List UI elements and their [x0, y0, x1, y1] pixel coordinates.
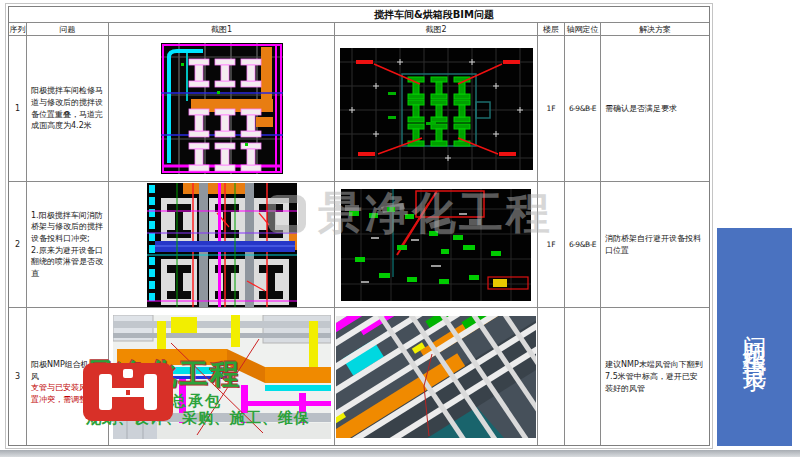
row3-axis [565, 308, 601, 445]
row2-screenshot1-image [147, 183, 297, 307]
row3-screenshot2-cell [335, 308, 538, 445]
row1-axis: 6-9&B-E [565, 36, 601, 182]
row2-screenshot2-cell [335, 182, 538, 308]
row1-screenshot2-cell [335, 36, 538, 182]
row1-problem-text: 阳极搅拌车间检修马道与修改后的搅拌设备位置重叠，马道完成面高度为4.2米 [31, 85, 105, 131]
row2-axis: 6-9&B-E [565, 182, 601, 308]
row1-screenshot1-image [161, 43, 283, 174]
side-banner: 问题报告记录 [717, 228, 792, 446]
side-banner-text: 问题报告记录 [743, 316, 767, 358]
row1-floor: 1F [538, 36, 565, 182]
row3-screenshot2-image [336, 316, 536, 438]
col-header-floor: 楼层 [538, 23, 565, 36]
row2-seq: 2 [9, 182, 27, 308]
page-bottom-edge [0, 450, 800, 457]
row2-screenshot2-image [341, 189, 531, 301]
col-header-seq: 序列 [9, 23, 27, 36]
row1-solution-text: 需确认是否满足要求 [605, 103, 677, 115]
row3-solution-cell: 建议NMP末端风管向下翻到7.5米管中标高，避开已安装好的风管 [601, 308, 709, 445]
row1-screenshot2-image [340, 48, 533, 170]
col-header-shot1: 截图1 [109, 23, 335, 36]
row1-problem-cell: 阳极搅拌车间检修马道与修改后的搅拌设备位置重叠，马道完成面高度为4.2米 [27, 36, 109, 182]
row1-solution-cell: 需确认是否满足要求 [601, 36, 709, 182]
row2-problem-cell: 1.阳极搅拌车间消防桥架与修改后的搅拌设备投料口冲突; 2.原来为避开设备口翻绕… [27, 182, 109, 308]
row2-floor: 1F [538, 182, 565, 308]
company-logo-icon [83, 363, 173, 421]
row3-seq: 3 [9, 308, 27, 445]
row3-solution-text: 建议NMP末端风管向下翻到7.5米管中标高，避开已安装好的风管 [605, 359, 705, 395]
row1-screenshot1-cell [109, 36, 335, 182]
col-header-solution: 解决方案 [601, 23, 709, 36]
col-header-problem: 问题 [27, 23, 109, 36]
row2-solution-text: 消防桥架自行避开设备投料口位置 [605, 233, 705, 257]
row1-seq: 1 [9, 36, 27, 182]
row2-screenshot1-cell [109, 182, 335, 308]
report-page: 搅拌车间&烘箱段BIM问题 序列 问题 截图1 截图2 楼层 轴网定位 解决方案… [0, 0, 800, 457]
col-header-shot2: 截图2 [335, 23, 538, 36]
report-title: 搅拌车间&烘箱段BIM问题 [9, 7, 709, 23]
row2-problem-text: 1.阳极搅拌车间消防桥架与修改后的搅拌设备投料口冲突; 2.原来为避开设备口翻绕… [31, 210, 105, 280]
col-header-axis: 轴网定位 [565, 23, 601, 36]
row3-floor [538, 308, 565, 445]
row2-solution-cell: 消防桥架自行避开设备投料口位置 [601, 182, 709, 308]
